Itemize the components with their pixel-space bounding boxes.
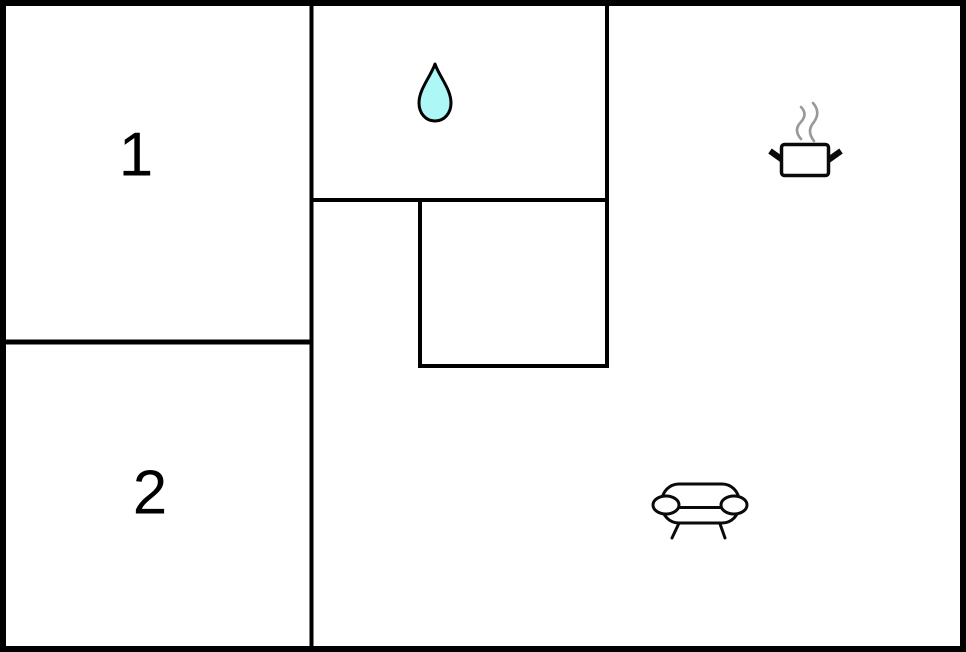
room-2-label: 2 [133,459,167,528]
sofa-armrest-right [721,496,747,514]
sofa-armrest-left [653,496,679,514]
pot-body [782,145,829,176]
floor-plan: 1 2 [0,0,966,652]
floor-plan-drawing: 1 2 [0,0,966,652]
room-1-label: 1 [119,121,153,190]
plan-background [0,0,966,652]
